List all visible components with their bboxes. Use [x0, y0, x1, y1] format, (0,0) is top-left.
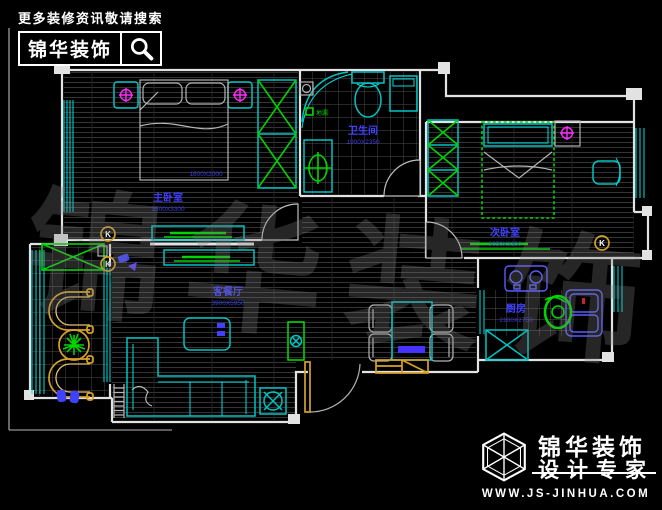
room-dim-living: 3900X5950 — [211, 300, 245, 307]
footer-website: WWW.JS-JINHUA.COM — [482, 488, 650, 500]
footer-brand: 锦华装饰 — [538, 435, 654, 459]
screenshot-stage: 1800X2000 主卧室 3500X3300 — [0, 0, 662, 510]
room-label-bedroom2: 次卧室 — [490, 226, 520, 239]
room-dim-kitchen: 2100X2750 — [499, 317, 533, 324]
brand-logo-text: 锦华装饰 — [20, 33, 120, 64]
footer-brand-block: 锦华装饰 设计专家 — [538, 435, 654, 483]
floor-drain-label: 地漏 — [316, 109, 328, 117]
room-dim-bedroom2: 3050X3300 — [488, 241, 522, 248]
search-button[interactable] — [120, 33, 160, 64]
gas-stove — [505, 266, 547, 291]
room-label-living: 客餐厅 — [212, 285, 243, 298]
svg-text:K: K — [105, 260, 111, 269]
wireframe-cube-icon — [478, 431, 530, 483]
svg-text:K: K — [599, 239, 605, 248]
placemat — [398, 346, 425, 353]
header: 更多装修资讯敬请搜索 锦华装饰 — [18, 8, 163, 66]
bed-dimension: 1800X2000 — [189, 171, 223, 178]
brand-search-box: 锦华装饰 — [18, 31, 162, 66]
entry-door — [305, 362, 360, 412]
room-label-master: 主卧室 — [153, 191, 183, 204]
footer-subtitle: 设计专家 — [538, 459, 654, 483]
svg-text:K: K — [105, 230, 111, 239]
footer-logo: 锦华装饰 设计专家 WWW.JS-JINHUA.COM — [478, 431, 654, 500]
room-dim-bathroom: 1900X2350 — [346, 139, 380, 146]
magnifier-icon — [128, 36, 154, 62]
entry — [305, 360, 428, 412]
header-tagline: 更多装修资讯敬请搜索 — [18, 8, 163, 27]
room-label-bathroom: 卫生间 — [348, 124, 378, 137]
room-label-kitchen: 厨房 — [506, 302, 526, 315]
room-dim-master: 3500X3300 — [151, 206, 185, 213]
